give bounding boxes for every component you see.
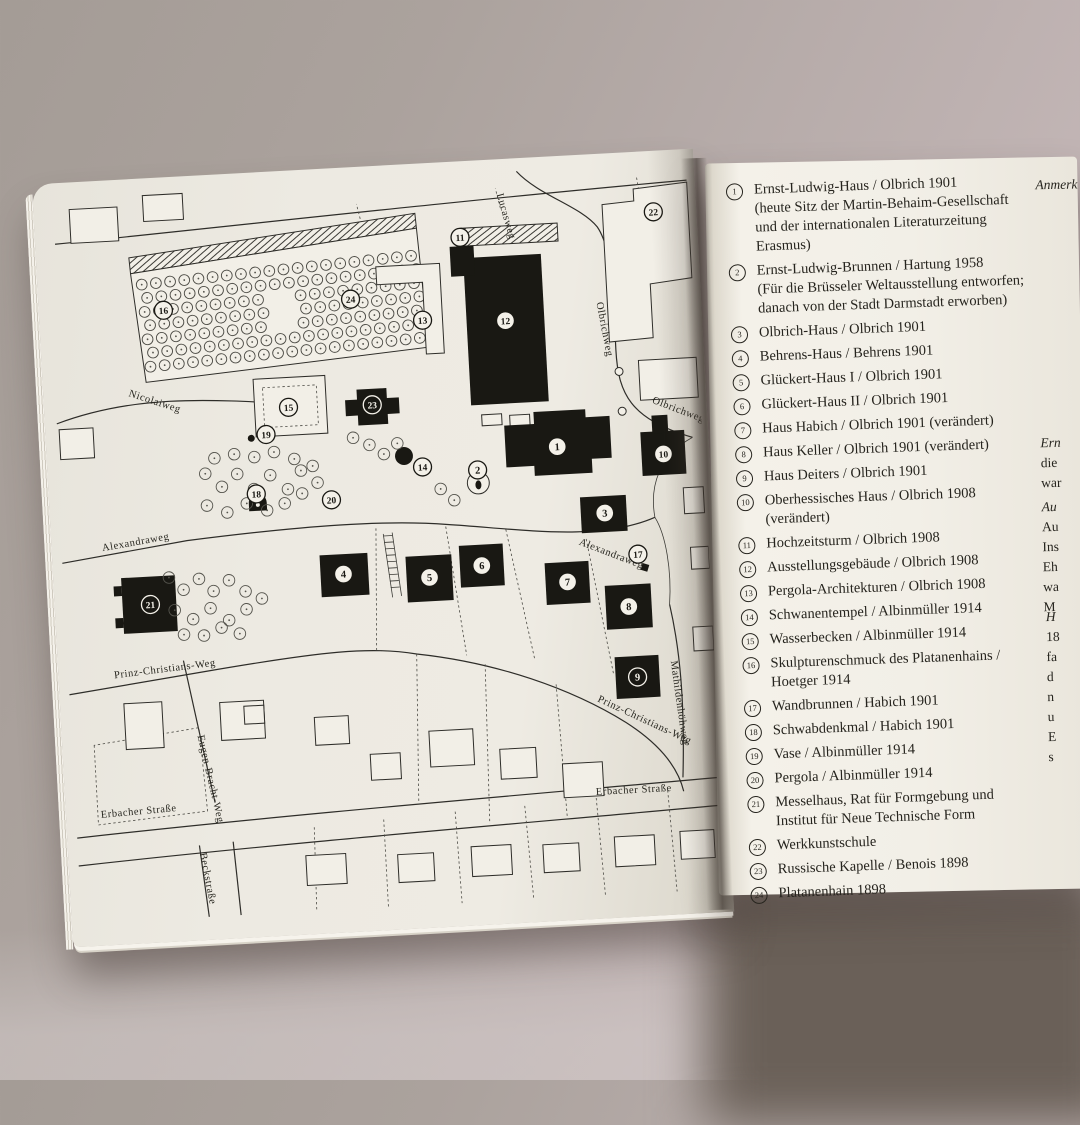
map-marker-3: 3 xyxy=(595,504,614,523)
map-marker-15: 15 xyxy=(279,398,298,417)
book-shadow xyxy=(705,885,1080,1125)
map-marker-18: 18 xyxy=(247,484,266,503)
legend-item-text: Vase / Albinmüller 1914 xyxy=(773,740,915,764)
map-marker-1: 1 xyxy=(548,437,567,456)
svg-text:18: 18 xyxy=(251,490,261,501)
map-marker-7: 7 xyxy=(558,572,577,591)
left-page: LucaswegOlbrichwegOlbrichwegNicolaiwegAl… xyxy=(32,149,734,948)
legend-item-text: Oberhessisches Haus / Olbrich 1908 (verä… xyxy=(764,482,1039,530)
svg-text:1: 1 xyxy=(554,442,560,453)
street-label: Prinz-Christians-Weg xyxy=(596,694,694,747)
legend-item-number: 5 xyxy=(732,374,750,392)
legend-item-number: 19 xyxy=(745,748,763,766)
svg-text:20: 20 xyxy=(327,496,337,507)
svg-text:14: 14 xyxy=(418,463,428,474)
legend-list: 1Ernst-Ludwig-Haus / Olbrich 1901(heute … xyxy=(726,171,1053,909)
svg-text:19: 19 xyxy=(261,431,271,442)
legend-item-text: Glückert-Haus II / Olbrich 1901 xyxy=(761,389,948,415)
legend-item-number: 15 xyxy=(741,633,759,651)
margin-note-4: H18fadnuEs xyxy=(1046,607,1063,767)
legend-item-text: Schwabdenkmal / Habich 1901 xyxy=(773,715,955,740)
legend-item-text: Skulpturenschmuck des Platanenhains / Ho… xyxy=(770,645,1045,693)
legend-item-number: 22 xyxy=(749,839,767,857)
legend-item-number: 23 xyxy=(749,863,767,881)
map-marker-23: 23 xyxy=(363,395,382,414)
legend-item-24: 24Platanenhain 1898 xyxy=(750,875,1052,905)
legend-item-16: 16Skulpturenschmuck des Platanenhains / … xyxy=(742,645,1045,694)
svg-text:23: 23 xyxy=(367,401,377,412)
svg-text:17: 17 xyxy=(633,550,643,561)
legend-item-number: 12 xyxy=(739,561,757,579)
legend-item-10: 10Oberhessisches Haus / Olbrich 1908 (ve… xyxy=(737,482,1040,531)
svg-text:24: 24 xyxy=(346,295,356,306)
legend-item-21: 21Messelhaus, Rat für Formgebung undInst… xyxy=(747,784,1050,833)
legend-item-text: Messelhaus, Rat für Formgebung undInstit… xyxy=(775,786,995,832)
right-page: 1Ernst-Ludwig-Haus / Olbrich 1901(heute … xyxy=(705,156,1080,895)
legend-item-text: Ernst-Ludwig-Brunnen / Hartung 1958(Für … xyxy=(756,252,1025,318)
svg-text:13: 13 xyxy=(418,317,428,328)
legend-item-number: 17 xyxy=(744,700,762,718)
legend-item-text: Haus Deiters / Olbrich 1901 xyxy=(764,462,928,487)
legend-item-number: 6 xyxy=(733,398,751,416)
svg-text:15: 15 xyxy=(284,404,294,415)
svg-text:16: 16 xyxy=(159,307,169,318)
map-marker-6: 6 xyxy=(472,556,491,575)
map-marker-2: 2 xyxy=(468,461,487,480)
margin-note-2: Erndiewar xyxy=(1040,433,1061,493)
legend-item-number: 21 xyxy=(747,796,765,814)
map-marker-4: 4 xyxy=(334,565,353,584)
legend-item-number: 20 xyxy=(746,772,764,790)
legend-item-number: 1 xyxy=(726,183,744,201)
street-label: Eugen-Bracht-Weg xyxy=(195,734,226,824)
legend-item-text: Pergola / Albinmüller 1914 xyxy=(774,764,933,789)
street-label: Alexandraweg xyxy=(101,531,170,554)
map-marker-16: 16 xyxy=(154,301,173,320)
legend-item-text: Wasserbecken / Albinmüller 1914 xyxy=(769,624,966,650)
legend-item-number: 2 xyxy=(729,264,747,282)
legend-item-1: 1Ernst-Ludwig-Haus / Olbrich 1901(heute … xyxy=(726,171,1030,257)
legend-item-number: 10 xyxy=(737,494,755,512)
platanenhain-grove xyxy=(127,213,430,383)
legend-item-number: 14 xyxy=(741,609,759,627)
legend-item-text: Olbrich-Haus / Olbrich 1901 xyxy=(759,318,927,343)
map-marker-24: 24 xyxy=(341,290,360,309)
legend-item-text: Russische Kapelle / Benois 1898 xyxy=(777,854,968,880)
margin-note-3: AuAuInsEhwaM xyxy=(1041,497,1060,617)
legend-item-2: 2Ernst-Ludwig-Brunnen / Hartung 1958(Für… xyxy=(728,252,1032,320)
map-marker-17: 17 xyxy=(628,545,647,564)
svg-text:8: 8 xyxy=(626,602,632,613)
backdrop-light-area xyxy=(0,930,760,1080)
legend-item-text: Wandbrunnen / Habich 1901 xyxy=(772,692,939,717)
svg-text:5: 5 xyxy=(427,573,433,584)
svg-text:10: 10 xyxy=(659,450,669,461)
map-marker-8: 8 xyxy=(619,597,638,616)
legend-item-text: Behrens-Haus / Behrens 1901 xyxy=(759,342,933,367)
legend-item-number: 3 xyxy=(731,326,749,344)
legend-item-number: 13 xyxy=(740,585,758,603)
legend-item-number: 9 xyxy=(736,470,754,488)
map-marker-22: 22 xyxy=(644,202,663,221)
legend-item-number: 4 xyxy=(732,350,750,368)
legend-item-text: Ernst-Ludwig-Haus / Olbrich 1901(heute S… xyxy=(754,171,1030,257)
legend-item-text: Werkkunstschule xyxy=(777,833,877,855)
map-marker-12: 12 xyxy=(496,311,515,330)
legend-item-number: 24 xyxy=(750,887,768,905)
map-marker-19: 19 xyxy=(257,425,276,444)
svg-text:12: 12 xyxy=(501,317,511,328)
svg-text:22: 22 xyxy=(648,208,658,219)
street-label: Prinz-Christians-Weg xyxy=(114,658,217,682)
svg-text:11: 11 xyxy=(455,234,465,244)
street-label: Erbacher Straße xyxy=(100,803,177,821)
svg-text:6: 6 xyxy=(479,561,485,572)
legend-item-number: 8 xyxy=(735,446,753,464)
legend-item-text: Schwanentempel / Albinmüller 1914 xyxy=(769,599,983,625)
map-marker-9: 9 xyxy=(628,668,647,687)
site-map: LucaswegOlbrichwegOlbrichwegNicolaiwegAl… xyxy=(40,157,727,925)
legend-item-text: Ausstellungsgebäude / Olbrich 1908 xyxy=(767,551,979,577)
legend-item-number: 7 xyxy=(734,422,752,440)
legend-item-number: 16 xyxy=(742,657,760,675)
legend-item-text: Hochzeitsturm / Olbrich 1908 xyxy=(766,528,940,553)
map-marker-20: 20 xyxy=(322,490,341,509)
legend-item-text: Haus Keller / Olbrich 1901 (verändert) xyxy=(763,436,989,463)
site-map-wrap: LucaswegOlbrichwegOlbrichwegNicolaiwegAl… xyxy=(40,157,727,925)
svg-text:2: 2 xyxy=(475,465,481,476)
map-marker-13: 13 xyxy=(413,311,432,330)
legend-item-number: 11 xyxy=(738,537,756,555)
map-marker-21: 21 xyxy=(141,595,160,614)
svg-text:21: 21 xyxy=(146,601,156,612)
svg-text:3: 3 xyxy=(602,508,608,519)
street-label: Nicolaiweg xyxy=(127,388,182,415)
map-marker-11: 11 xyxy=(451,228,470,247)
legend-item-text: Platanenhain 1898 xyxy=(778,881,886,904)
legend-item-text: Glückert-Haus I / Olbrich 1901 xyxy=(760,365,943,390)
map-marker-5: 5 xyxy=(420,568,439,587)
legend-item-text: Haus Habich / Olbrich 1901 (verändert) xyxy=(762,411,994,438)
legend-item-number: 18 xyxy=(745,724,763,742)
street-label: Erbacher Straße xyxy=(596,783,672,798)
map-marker-10: 10 xyxy=(654,444,673,463)
legend-item-text: Pergola-Architekturen / Olbrich 1908 xyxy=(768,575,986,602)
street-label: Beckstraße xyxy=(197,852,218,906)
margin-note-1: Anmerk xyxy=(1035,174,1077,195)
svg-text:7: 7 xyxy=(565,577,571,588)
map-marker-14: 14 xyxy=(413,458,432,477)
svg-text:9: 9 xyxy=(635,672,641,683)
